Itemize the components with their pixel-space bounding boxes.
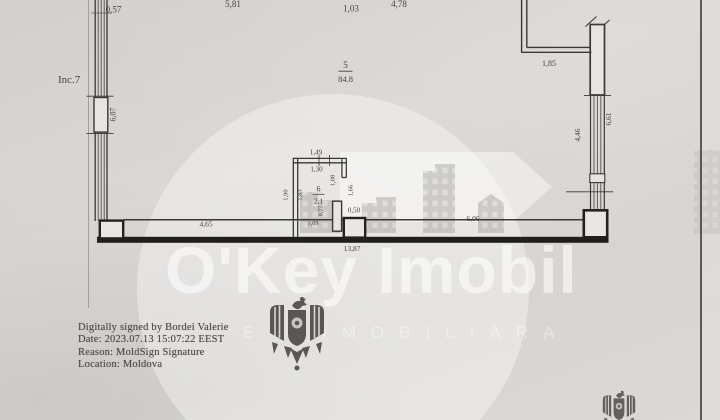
room5-number: 5: [343, 61, 348, 71]
dim-top-b: 5,81: [225, 0, 241, 9]
signature-line-4: Location: Moldova: [78, 359, 328, 371]
room6-number: 6: [317, 185, 321, 194]
dim-r6-top: 1,49: [310, 149, 323, 157]
window-symbol: [94, 98, 108, 133]
room5-label: 5 84.8: [338, 61, 353, 84]
dim-r6-left-in: 1,83: [297, 189, 304, 200]
room5-area: 84.8: [338, 74, 353, 84]
moldova-coat-of-arms-small: [603, 391, 635, 420]
dim-tr-width: 1,85: [542, 59, 556, 68]
digital-signature-block: Digitally signed by Bordei Valerie Date:…: [78, 322, 328, 371]
dim-top-c: 1,03: [343, 4, 359, 14]
dim-r6-w1: 0,77: [319, 206, 325, 217]
room7-label: Inc.7: [58, 74, 81, 86]
dim-left-height: 6,07: [109, 108, 118, 122]
dim-bottom-b: 1,09: [307, 220, 318, 227]
dim-top-a: 0,57: [106, 5, 122, 15]
dim-r6-right-in: 1,08: [330, 175, 337, 186]
dim-r6-top-in: 1,30: [310, 166, 323, 174]
column-right: [584, 210, 607, 237]
column-left: [100, 221, 123, 239]
dim-bottom-d: 6,06: [466, 214, 479, 223]
signature-line-2: Date: 2023.07.13 15:07:22 EEST: [78, 334, 328, 346]
building-watermark: [694, 150, 720, 234]
signature-line-1: Digitally signed by Bordei Valerie: [78, 322, 328, 334]
top-right-wall: [522, 0, 592, 53]
dim-bottom-total: 13,87: [344, 244, 361, 253]
room6-area: 2,1: [314, 197, 324, 206]
dim-r6-right-out: 1,66: [348, 184, 355, 196]
building-watermark: [423, 164, 455, 233]
dim-right-b: 6,61: [604, 112, 613, 125]
dim-bottom-a: 4,65: [199, 220, 212, 229]
watermark-brand-text: O'Key Imobil: [165, 233, 578, 307]
dim-right-a: 4,46: [573, 128, 582, 141]
wall-stub: [333, 201, 342, 231]
signature-line-3: Reason: MoldSign Signature: [78, 347, 328, 359]
dim-bottom-c: 0,50: [348, 207, 361, 215]
watermark-tagline: IMOBILIARA: [322, 323, 569, 342]
dim-top-d: 4,78: [391, 0, 407, 9]
dim-r6-left-out: 1,90: [283, 189, 290, 200]
scanned-floor-plan-document: O'Key Imobil E IMOBILIARA 0,57 5,81 1,03…: [0, 0, 720, 420]
